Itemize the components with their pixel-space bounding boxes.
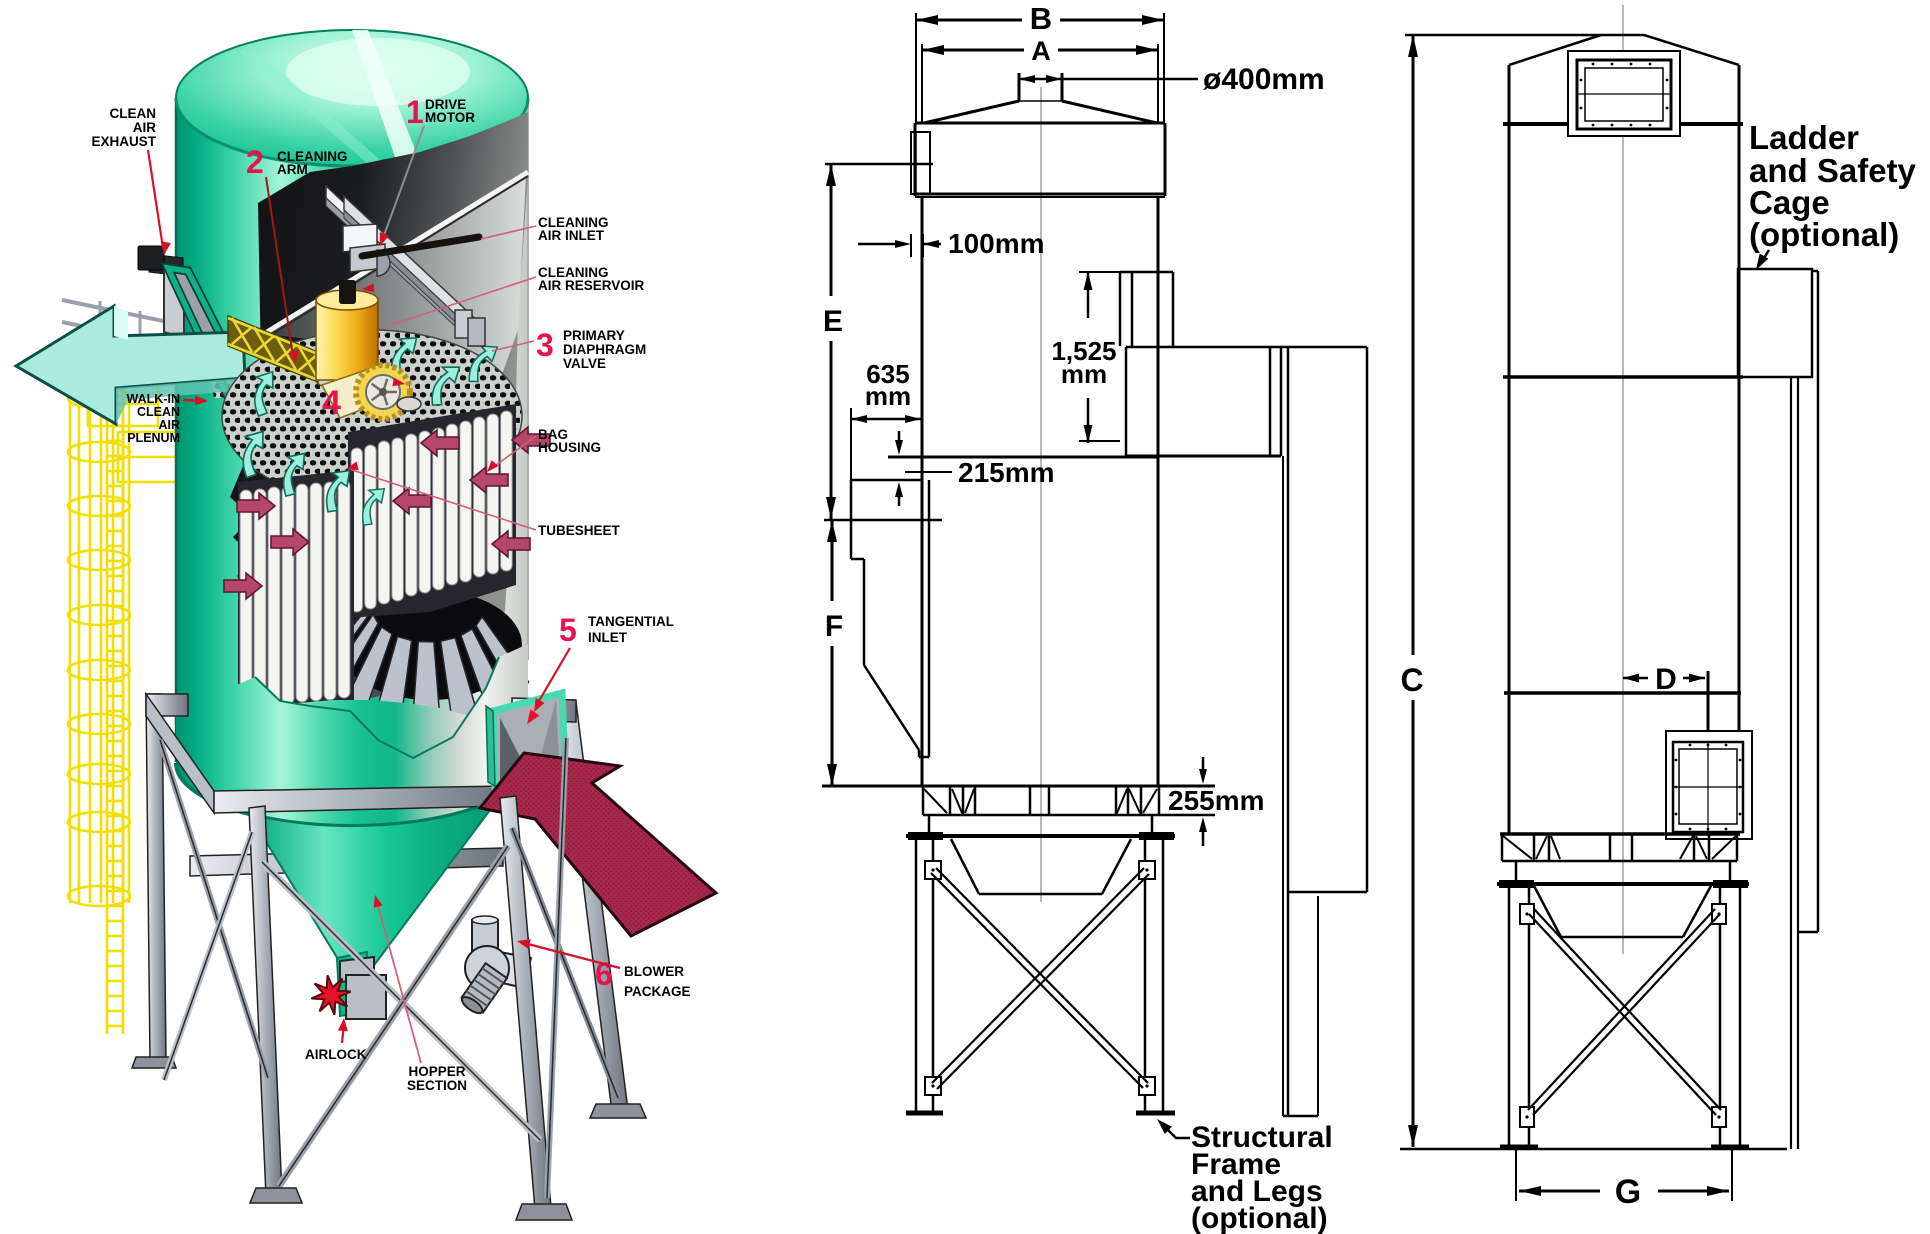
svg-text:C: C <box>1400 662 1423 698</box>
svg-text:HOUSING: HOUSING <box>538 440 601 455</box>
svg-text:2: 2 <box>246 144 264 180</box>
svg-text:TUBESHEET: TUBESHEET <box>538 523 621 538</box>
svg-text:EXHAUST: EXHAUST <box>91 134 156 149</box>
svg-text:CLEAN: CLEAN <box>110 106 157 121</box>
svg-text:AIRLOCK: AIRLOCK <box>305 1047 367 1062</box>
svg-text:CLEAN: CLEAN <box>137 405 180 419</box>
svg-text:B: B <box>1030 1 1052 36</box>
svg-text:DIAPHRAGM: DIAPHRAGM <box>563 342 646 357</box>
svg-text:AIR: AIR <box>158 418 180 432</box>
svg-text:100mm: 100mm <box>948 228 1045 259</box>
svg-text:215mm: 215mm <box>958 457 1055 488</box>
svg-text:AIR INLET: AIR INLET <box>538 228 605 243</box>
svg-text:ARM: ARM <box>277 162 308 177</box>
svg-text:PACKAGE: PACKAGE <box>624 984 691 999</box>
svg-text:4: 4 <box>322 384 341 422</box>
svg-text:F: F <box>825 610 843 643</box>
svg-text:D: D <box>1655 663 1677 696</box>
svg-text:G: G <box>1615 1173 1641 1211</box>
svg-text:E: E <box>823 305 843 338</box>
svg-text:(optional): (optional) <box>1191 1202 1328 1234</box>
svg-text:AIR: AIR <box>133 120 157 135</box>
svg-text:255mm: 255mm <box>1168 785 1265 816</box>
svg-text:Ladder: Ladder <box>1749 119 1859 156</box>
svg-text:3: 3 <box>536 327 554 363</box>
svg-text:5: 5 <box>559 612 577 648</box>
svg-text:mm: mm <box>1061 359 1107 389</box>
svg-text:SECTION: SECTION <box>407 1078 467 1093</box>
svg-text:TANGENTIAL: TANGENTIAL <box>588 614 674 629</box>
svg-text:HOPPER: HOPPER <box>408 1064 465 1079</box>
svg-text:INLET: INLET <box>588 630 628 645</box>
svg-text:MOTOR: MOTOR <box>425 110 475 125</box>
svg-text:VALVE: VALVE <box>563 356 606 371</box>
svg-text:A: A <box>1031 36 1051 66</box>
svg-text:WALK-IN: WALK-IN <box>127 392 180 406</box>
svg-text:PLENUM: PLENUM <box>127 431 180 445</box>
svg-text:1: 1 <box>406 94 424 130</box>
svg-text:mm: mm <box>865 381 911 411</box>
svg-text:AIR RESERVOIR: AIR RESERVOIR <box>538 278 645 293</box>
svg-text:ø400mm: ø400mm <box>1203 63 1325 96</box>
svg-text:(optional): (optional) <box>1749 216 1899 253</box>
svg-text:BLOWER: BLOWER <box>624 964 684 979</box>
svg-text:PRIMARY: PRIMARY <box>563 328 625 343</box>
